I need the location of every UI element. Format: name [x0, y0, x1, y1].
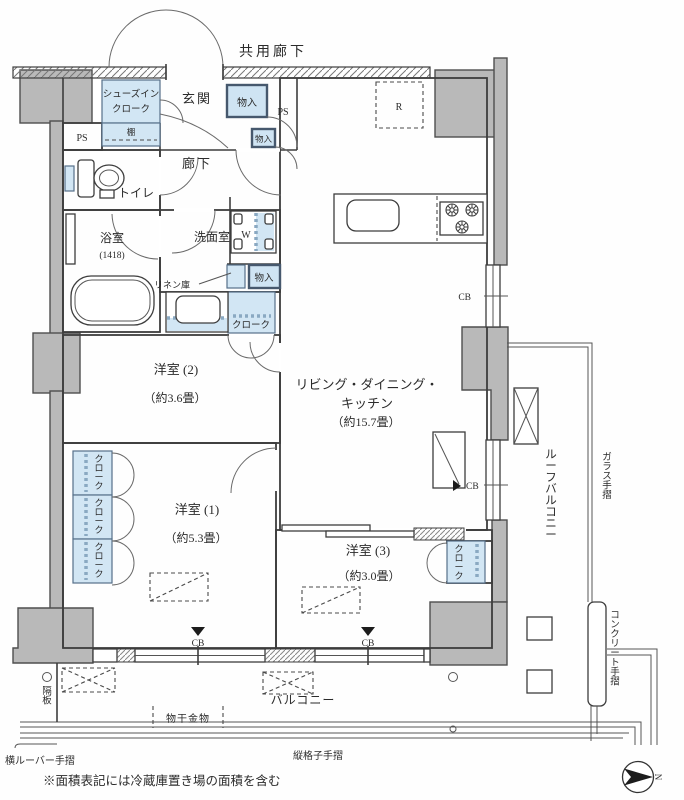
entrance-door-arc	[109, 10, 223, 67]
compass: N	[623, 762, 664, 793]
concrete-handrail-shape	[588, 602, 606, 706]
label-linen: リネン庫	[154, 279, 190, 290]
label-laundry-fitting: 物干金物	[166, 712, 210, 725]
duct-box	[433, 432, 465, 491]
label-glass-rail: ガラス手摺	[602, 452, 612, 501]
pillar-right-mid	[462, 327, 508, 440]
north-label: N	[653, 774, 663, 781]
label-shoes-closet-2: クローク	[112, 104, 150, 115]
label-common-corridor: 共用廊下	[239, 43, 307, 60]
label-cloak-bed3: クローク	[454, 544, 463, 581]
label-ldk-size: （約15.7畳）	[331, 414, 400, 429]
label-ldk-1: リビング・ダイニング・	[295, 377, 438, 392]
pillar-bottom-right	[430, 602, 507, 665]
room-bedroom2	[63, 335, 280, 443]
cloak-bedroom1-b	[73, 495, 112, 539]
label-ldk-2: キッチン	[341, 396, 393, 411]
floor-plan: N 共用廊下 玄関 シューズイン クローク 棚 物入 PS 物入 PS 廊下 ト…	[0, 0, 684, 800]
label-cb-1: CB	[458, 293, 471, 303]
label-storage-washroom: 物入	[254, 272, 274, 284]
label-bedroom1-size: （約5.3畳）	[164, 530, 227, 545]
cb-triangle-1	[191, 627, 205, 636]
pillar-bottom-left	[13, 608, 93, 663]
kitchen-sink	[347, 200, 399, 231]
label-ps-right: PS	[277, 107, 288, 118]
label-shelf: 棚	[127, 127, 136, 137]
label-partition: 隔板	[42, 686, 52, 707]
label-bath-size: (1418)	[99, 250, 124, 261]
label-toilet: トイレ	[118, 186, 154, 200]
label-washroom: 洗面室	[194, 229, 230, 244]
top-wall	[13, 10, 430, 80]
toilet-fixture	[65, 160, 124, 198]
label-bath: 浴室	[100, 230, 124, 245]
label-bedroom3: 洋室 (3)	[346, 543, 390, 558]
cloak-bedroom1-a	[73, 451, 112, 495]
note-text: ※面積表記には冷蔵庫置き場の面積を含む	[43, 773, 281, 788]
label-entrance: 玄関	[182, 91, 212, 106]
right-wall-lower	[492, 520, 507, 602]
label-ps-left: PS	[76, 133, 87, 144]
label-fridge: R	[396, 102, 403, 113]
sliding-door	[282, 525, 464, 540]
label-balcony: バルコニー	[271, 693, 336, 707]
left-wall-lower	[50, 391, 63, 610]
label-bedroom1: 洋室 (1)	[175, 502, 219, 517]
cb-triangle-2	[361, 627, 375, 636]
label-louver-rail: 横ルーバー手摺	[5, 754, 75, 767]
label-bedroom2-size: （約3.6畳）	[143, 390, 206, 405]
entrance-step-line	[160, 114, 228, 148]
pillar-top-right	[435, 70, 495, 137]
washbasin	[166, 292, 228, 332]
right-wall-upper	[494, 58, 507, 265]
label-cb-3: CB	[192, 639, 205, 649]
label-shoes-closet-1: シューズイン	[103, 88, 160, 100]
label-cb-4: CB	[362, 639, 375, 649]
label-cloak-washroom: クローク	[232, 320, 270, 331]
labels: 共用廊下 玄関 シューズイン クローク 棚 物入 PS 物入 PS 廊下 トイレ…	[5, 43, 479, 788]
label-concrete-rail: コンクリート手摺	[610, 611, 620, 688]
cloak-bedroom3	[447, 541, 485, 583]
label-washer: W	[241, 230, 251, 241]
dashed-storage-symbols	[150, 573, 360, 613]
label-bedroom2: 洋室 (2)	[154, 362, 198, 377]
label-cloak-bed1-b: クローク	[94, 498, 103, 535]
label-storage-small: 物入	[255, 134, 273, 144]
linen-box	[227, 265, 245, 288]
washing-machine	[231, 211, 276, 253]
hatched-wall-left	[13, 67, 166, 78]
label-storage-entrance: 物入	[237, 96, 257, 109]
label-cloak-bed1-c: クローク	[94, 542, 103, 579]
floor-plan-page: N 共用廊下 玄関 シューズイン クローク 棚 物入 PS 物入 PS 廊下 ト…	[0, 0, 684, 800]
hatched-wall-right	[223, 67, 430, 78]
label-roof-balcony: ルーフバルコニー	[545, 449, 557, 542]
cb-markers	[191, 627, 375, 636]
kitchen-counter	[334, 194, 487, 243]
shoes-in-closet	[102, 80, 160, 123]
label-cloak-bed1-a: クローク	[94, 454, 103, 491]
label-cb-2: CB	[466, 482, 479, 492]
label-lattice-rail: 縦格子手摺	[293, 749, 343, 762]
room-outlines	[63, 78, 492, 648]
louver-rail-line	[15, 744, 57, 748]
label-hallway: 廊下	[182, 156, 212, 171]
cloak-bedroom1-c	[73, 539, 112, 583]
label-bedroom3-size: （約3.0畳）	[337, 568, 400, 583]
pillar-mid-left	[33, 333, 80, 393]
left-wall-upper	[50, 121, 63, 335]
